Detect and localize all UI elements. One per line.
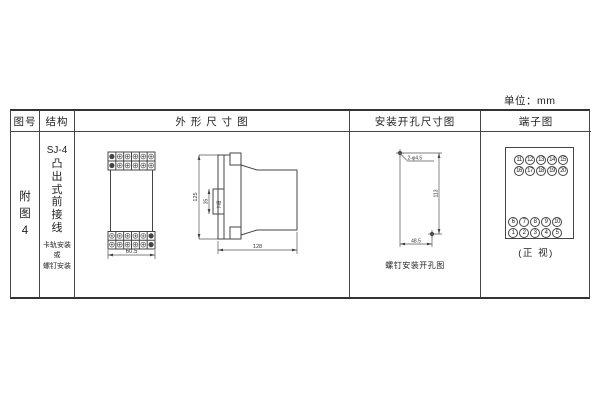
screw-terminal-filled bbox=[148, 233, 153, 238]
outline-drawing-cell: 60.5 125 35 bbox=[74, 132, 349, 297]
terminal-circle: 14 bbox=[547, 155, 557, 165]
front-width-dim-label: 60.5 bbox=[126, 249, 138, 255]
terminal-outline: 1112131415161718192067891012345 bbox=[505, 147, 574, 239]
side-depth-dim-label: 128 bbox=[253, 244, 262, 250]
mount-note-line2: 或 bbox=[43, 251, 71, 262]
horizontal-dimension: 48.5 bbox=[400, 156, 432, 248]
structure-cell: SJ-4 凸出式前接线 卡轨安装 或 螺钉安装 bbox=[39, 132, 74, 297]
terminal-circle: 12 bbox=[525, 155, 535, 165]
front-terminal-block-top bbox=[108, 152, 155, 170]
side-terminal-block-bottom bbox=[230, 227, 241, 239]
screw-terminal-filled bbox=[109, 163, 114, 168]
spec-table: 图号 结构 外 形 尺 寸 图 安装开孔尺寸图 端子图 附图4 SJ-4 凸出式… bbox=[10, 109, 590, 299]
terminal-circle: 7 bbox=[519, 217, 529, 227]
terminal-diagram-cell: 1112131415161718192067891012345 (正 视) bbox=[480, 132, 591, 297]
terminal-circle: 9 bbox=[541, 217, 551, 227]
front-terminal-block-bottom bbox=[108, 232, 155, 250]
terminal-circle: 20 bbox=[558, 166, 568, 176]
mounting-holes-drawing: 2-φ4.5 113 48.5 bbox=[387, 147, 467, 252]
holes-callout: 2-φ4.5 bbox=[401, 155, 434, 162]
side-slot-dim-label: 35 bbox=[204, 199, 210, 205]
din-rail-slot-label: 卡槽 bbox=[216, 200, 223, 209]
side-view-drawing: 125 35 卡槽 bbox=[192, 148, 307, 262]
terminal-circle: 16 bbox=[514, 166, 524, 176]
terminal-circle: 19 bbox=[547, 166, 557, 176]
terminal-circle: 17 bbox=[525, 166, 535, 176]
terminal-circle: 1 bbox=[508, 228, 518, 238]
structure-type-text: 凸出式前接线 bbox=[51, 158, 64, 235]
screw-terminal-filled bbox=[109, 154, 114, 159]
holes-callout-label: 2-φ4.5 bbox=[408, 156, 423, 162]
terminal-circle: 13 bbox=[536, 155, 546, 165]
screw-terminal-filled bbox=[148, 242, 153, 247]
header-figure-no: 图号 bbox=[11, 111, 39, 132]
header-outline: 外 形 尺 寸 图 bbox=[74, 111, 349, 132]
header-mounting: 安装开孔尺寸图 bbox=[349, 111, 480, 132]
terminal-circle: 18 bbox=[536, 166, 546, 176]
mount-note: 卡轨安装 或 螺钉安装 bbox=[43, 241, 71, 273]
figure-no-cell: 附图4 bbox=[11, 132, 39, 297]
terminal-circle: 8 bbox=[530, 217, 540, 227]
side-terminal-block-top bbox=[230, 153, 241, 165]
mount-note-line1: 卡轨安装 bbox=[43, 241, 71, 252]
model-label: SJ-4 bbox=[47, 145, 68, 156]
horizontal-dim-label: 48.5 bbox=[411, 239, 421, 245]
terminal-circle: 3 bbox=[530, 228, 540, 238]
side-slot-dimension: 35 bbox=[204, 189, 211, 214]
terminal-circle: 15 bbox=[558, 155, 568, 165]
front-width-dimension: 60.5 bbox=[108, 249, 155, 259]
terminal-circle: 5 bbox=[552, 228, 562, 238]
front-body bbox=[111, 170, 153, 232]
header-terminal: 端子图 bbox=[480, 111, 591, 132]
side-height-dim-label: 125 bbox=[193, 192, 199, 201]
vertical-dimension: 113 bbox=[403, 153, 442, 234]
vertical-dim-label: 113 bbox=[434, 189, 440, 197]
figure-no-text: 附图4 bbox=[18, 189, 32, 239]
terminal-caption: (正 视) bbox=[481, 245, 591, 259]
terminal-circle: 11 bbox=[514, 155, 524, 165]
mounting-caption: 螺钉安装开孔图 bbox=[350, 260, 480, 271]
terminal-circle: 2 bbox=[519, 228, 529, 238]
side-mounting-plate bbox=[218, 155, 224, 239]
terminal-circle: 4 bbox=[541, 228, 551, 238]
side-height-dimension: 125 bbox=[193, 155, 219, 239]
terminal-circle: 10 bbox=[552, 217, 562, 227]
front-view-drawing: 60.5 bbox=[102, 148, 162, 262]
side-neck-lines bbox=[224, 155, 230, 239]
side-body-outline bbox=[241, 165, 297, 235]
terminal-circle: 6 bbox=[508, 217, 518, 227]
mount-note-line3: 螺钉安装 bbox=[43, 262, 71, 273]
unit-label: 单位：mm bbox=[504, 93, 556, 108]
header-structure: 结构 bbox=[39, 111, 74, 132]
mounting-drawing-cell: 2-φ4.5 113 48.5 螺钉安装开孔图 bbox=[349, 132, 480, 297]
